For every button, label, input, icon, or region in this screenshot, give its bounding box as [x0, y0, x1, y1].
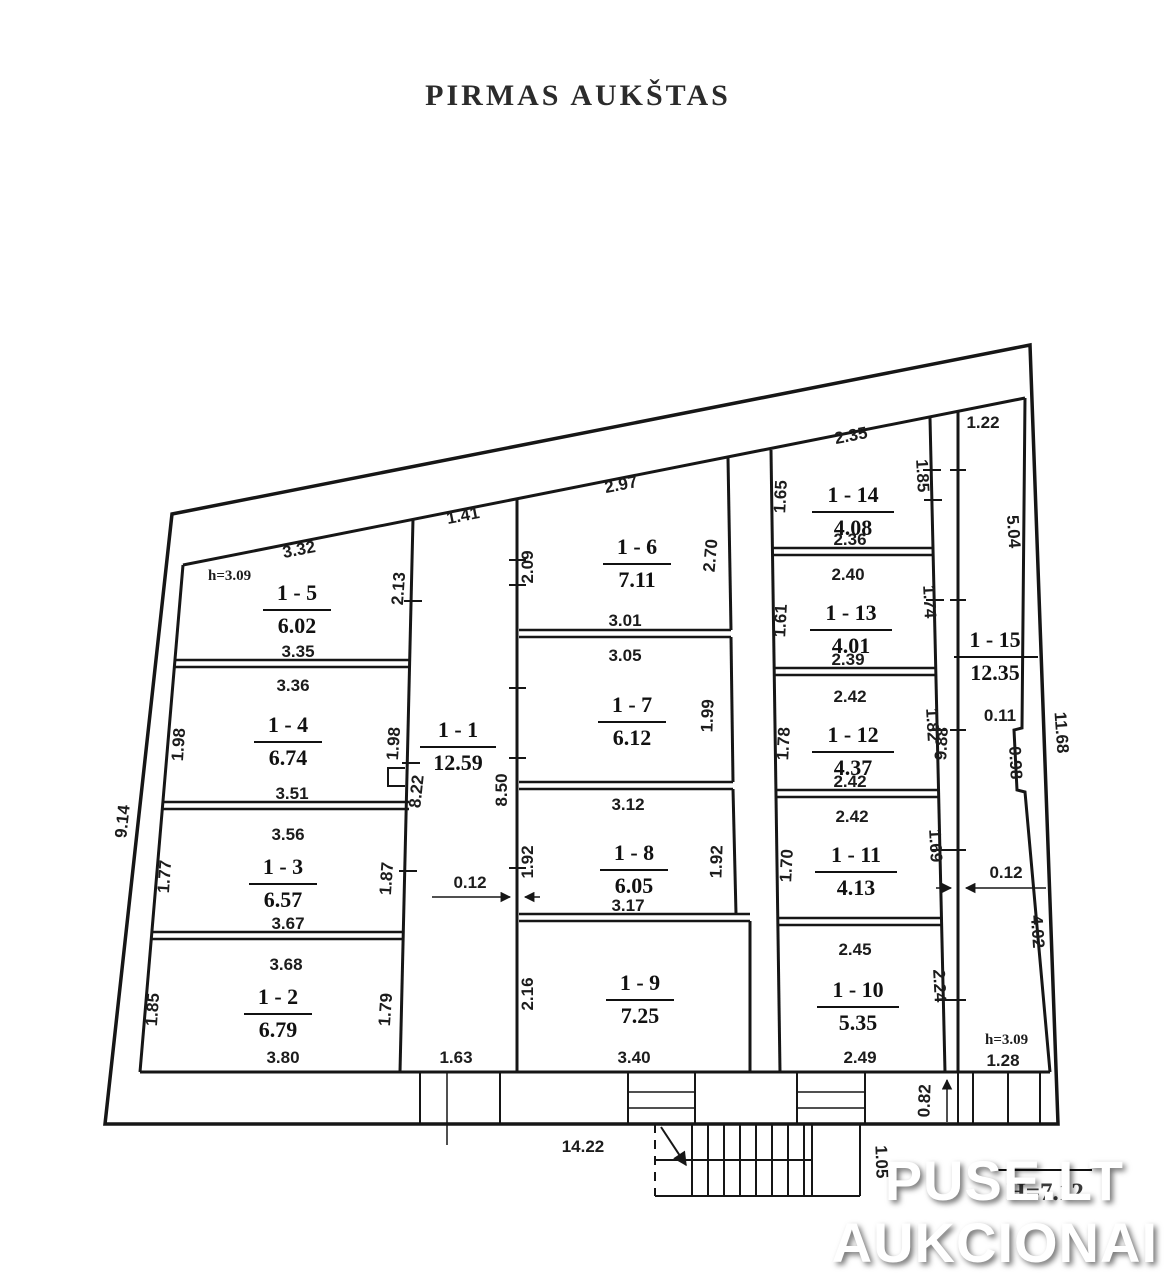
r10-right-dim: 2.24: [929, 969, 950, 1004]
r7-right-dim: 1.99: [697, 699, 717, 733]
r15-top-dim: 1.22: [966, 413, 999, 432]
r6-top-dim: 2.97: [603, 472, 639, 497]
r15-label: 1 - 15: [969, 627, 1020, 652]
wall-thickness-left-dim: 0.12: [453, 873, 486, 892]
r14-bottom-dim: 2.36: [833, 530, 866, 549]
r11-label: 1 - 11: [831, 842, 881, 867]
r6-label: 1 - 6: [617, 534, 657, 559]
r5-bottom-dim: 3.35: [281, 642, 314, 661]
r2-right-dim: 1.79: [375, 992, 396, 1026]
r9-label: 1 - 9: [620, 970, 660, 995]
r3-area: 6.57: [264, 887, 303, 912]
r8-left-dim: 1.92: [518, 845, 537, 878]
r2-label: 1 - 2: [258, 984, 298, 1009]
staircase: [655, 1124, 860, 1196]
r3-right-dim: 1.87: [376, 861, 397, 895]
r13-bottom-dim: 2.39: [831, 650, 864, 669]
r14-top-dim: 2.35: [833, 423, 869, 448]
r5-right-dim: 2.13: [388, 571, 409, 605]
r6-bottom-dim: 3.01: [608, 611, 641, 630]
r14-right-dim: 1.85: [912, 459, 933, 493]
r11-right-dim: 1.69: [925, 829, 946, 863]
r4-top-dim: 3.36: [276, 676, 309, 695]
r8-bottom-dim: 3.17: [611, 896, 644, 915]
r1-area: 12.59: [433, 750, 483, 775]
r8-right-dim: 1.92: [706, 845, 726, 879]
r3-bottom-dim: 3.67: [271, 914, 304, 933]
r8-label: 1 - 8: [614, 840, 654, 865]
r1-label: 1 - 1: [438, 717, 478, 742]
r13-right-dim: 1.74: [919, 585, 940, 620]
r10-area: 5.35: [839, 1010, 878, 1035]
r15-bottom-dim: 1.28: [986, 1051, 1019, 1070]
r11-area: 4.13: [837, 875, 876, 900]
r13-label: 1 - 13: [825, 600, 876, 625]
r14-left-dim: 1.65: [770, 480, 791, 514]
room-labels: 3.32 h=3.09 1 - 5 6.02 3.35 2.13 3.36 1 …: [142, 413, 1038, 1070]
r14-label: 1 - 14: [827, 482, 878, 507]
floor-plan-svg: PIRMAS AUKŠTAS: [0, 0, 1165, 1280]
right-wall-upper-dim: 5.04: [1003, 514, 1024, 549]
r2-bottom-dim: 3.80: [266, 1048, 299, 1067]
r12-top-dim: 2.42: [833, 687, 866, 706]
r8-top-dim: 3.12: [611, 795, 644, 814]
r5-top-dim: 3.32: [281, 537, 317, 562]
r13-top-dim: 2.40: [831, 565, 864, 584]
right-wall-offset-dim: 0.11: [984, 706, 1016, 725]
r12-label: 1 - 12: [827, 722, 878, 747]
r1-bottom-dim: 1.63: [439, 1048, 472, 1067]
r11-left-dim: 1.70: [776, 849, 797, 883]
r4-right-dim: 1.98: [383, 726, 404, 760]
r9-left-dim: 2.16: [518, 977, 537, 1010]
right-wall-jog-dim: 0.98: [1005, 746, 1026, 780]
r1-top-dim: 1.41: [445, 503, 481, 528]
outer-bottom-dim: 14.22: [562, 1137, 605, 1156]
r5-area: 6.02: [278, 613, 317, 638]
porch-depth-dim: 0.82: [914, 1084, 934, 1118]
r7-label: 1 - 7: [612, 692, 652, 717]
r10-top-dim: 2.45: [838, 940, 871, 959]
r10-label: 1 - 10: [832, 977, 883, 1002]
r15-area: 12.35: [970, 660, 1020, 685]
page-title: PIRMAS AUKŠTAS: [425, 79, 731, 112]
r4-label: 1 - 4: [268, 712, 308, 737]
r5-label: 1 - 5: [277, 580, 317, 605]
r11-top-dim: 2.42: [835, 807, 868, 826]
r7-top-dim: 3.05: [608, 646, 641, 665]
r3-left-dim: 1.77: [154, 859, 175, 893]
r4-left-dim: 1.98: [168, 727, 189, 761]
r4-bottom-dim: 3.51: [275, 784, 308, 803]
r4-area: 6.74: [269, 745, 308, 770]
r7-area: 6.12: [613, 725, 652, 750]
r9-bottom-dim: 3.40: [617, 1048, 650, 1067]
r9-area: 7.25: [621, 1003, 660, 1028]
r2-area: 6.79: [259, 1017, 298, 1042]
r3-top-dim: 3.56: [271, 825, 304, 844]
r12-left-dim: 1.78: [773, 727, 794, 761]
right-wall-lower-dim: 4.02: [1027, 914, 1048, 948]
r2-top-dim: 3.68: [269, 955, 302, 974]
r13-left-dim: 1.61: [770, 604, 791, 638]
floor-plan-page: PIRMAS AUKŠTAS: [0, 0, 1165, 1280]
wall-thickness-right-dim: 0.12: [989, 863, 1022, 882]
corridor-right-dim: 9.88: [931, 727, 952, 761]
r6-right-dim: 2.70: [700, 538, 722, 573]
r1-left-wall-dim: 8.22: [405, 774, 427, 809]
r10-bottom-dim: 2.49: [843, 1048, 876, 1067]
r15-height-note: h=3.09: [985, 1032, 1028, 1048]
outer-right-total-dim: 11.68: [1051, 711, 1073, 754]
outer-left-dim: 9.14: [111, 803, 133, 838]
r3-label: 1 - 3: [263, 854, 303, 879]
r12-bottom-dim: 2.42: [833, 772, 866, 791]
r8-area: 6.05: [615, 873, 654, 898]
r6-area: 7.11: [618, 567, 655, 592]
r1-right-wall-dim: 8.50: [492, 773, 511, 806]
watermark-line1: PUSE.LT: [885, 1149, 1124, 1212]
r6-left-dim: 2.09: [518, 550, 537, 583]
watermark-line2: AUKCIONAI: [832, 1211, 1158, 1274]
r2-left-dim: 1.85: [142, 992, 163, 1026]
r5-height-note: h=3.09: [208, 568, 251, 584]
